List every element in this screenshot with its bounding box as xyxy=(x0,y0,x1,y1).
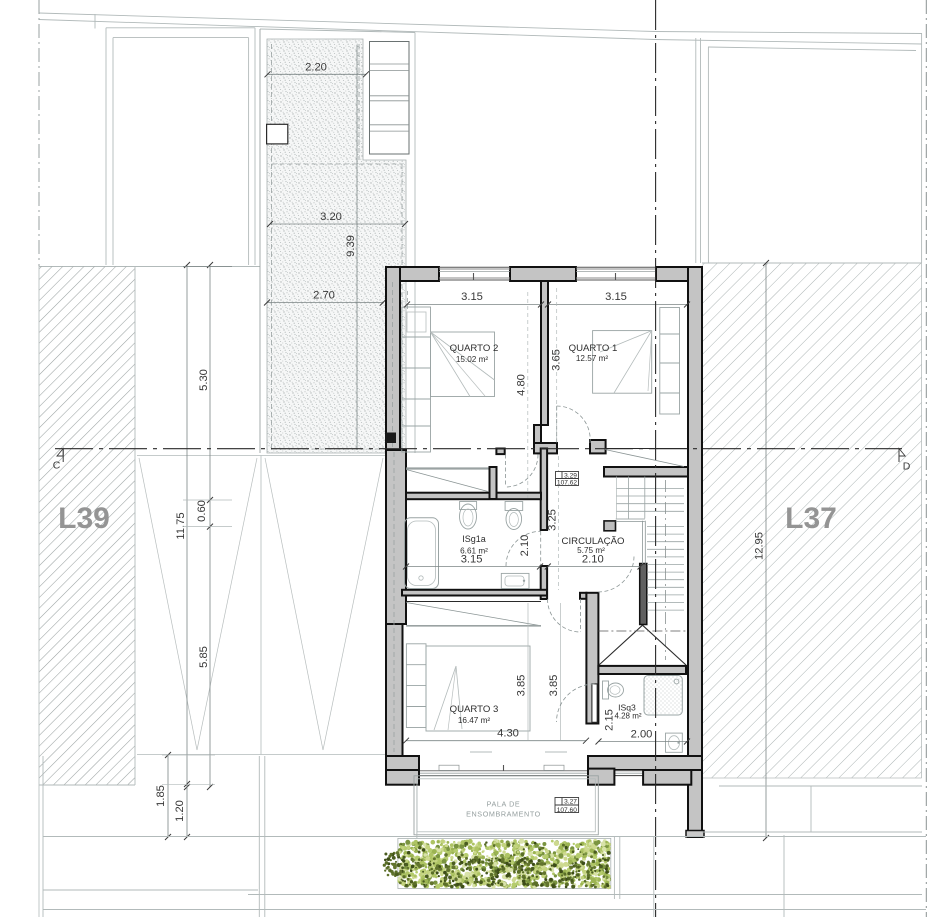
svg-text:3.25: 3.25 xyxy=(547,509,559,531)
svg-text:5.30: 5.30 xyxy=(198,369,210,391)
svg-text:2.15: 2.15 xyxy=(604,709,616,731)
svg-text:L37: L37 xyxy=(785,502,837,535)
svg-text:D: D xyxy=(903,461,911,473)
svg-text:3.15: 3.15 xyxy=(461,554,483,566)
svg-text:3.15: 3.15 xyxy=(461,291,483,303)
svg-text:2.20: 2.20 xyxy=(305,62,327,74)
svg-text:3.29: 3.29 xyxy=(564,472,577,479)
svg-text:107.60: 107.60 xyxy=(557,807,578,814)
svg-text:11.75: 11.75 xyxy=(175,512,187,539)
svg-text:3.65: 3.65 xyxy=(551,349,563,371)
svg-text:ISg1a: ISg1a xyxy=(462,534,486,544)
svg-text:3.85: 3.85 xyxy=(548,675,560,697)
svg-text:QUARTO 2: QUARTO 2 xyxy=(450,343,499,354)
svg-text:QUARTO 1: QUARTO 1 xyxy=(569,343,618,354)
svg-text:0.60: 0.60 xyxy=(196,500,208,522)
svg-text:4.80: 4.80 xyxy=(516,374,528,396)
svg-text:16.47 m²: 16.47 m² xyxy=(458,716,491,725)
svg-text:3.27: 3.27 xyxy=(564,799,577,806)
svg-text:2.00: 2.00 xyxy=(631,729,653,741)
svg-text:4.28 m²: 4.28 m² xyxy=(614,712,641,721)
svg-text:2.10: 2.10 xyxy=(582,554,604,566)
svg-text:PALA DE: PALA DE xyxy=(487,800,521,809)
svg-text:1.20: 1.20 xyxy=(174,800,186,822)
svg-text:2.70: 2.70 xyxy=(313,290,335,302)
svg-text:4.30: 4.30 xyxy=(497,728,519,740)
svg-text:107.62: 107.62 xyxy=(557,479,578,486)
svg-text:L39: L39 xyxy=(58,502,110,535)
svg-text:12.95: 12.95 xyxy=(754,532,766,560)
svg-text:1.85: 1.85 xyxy=(155,785,167,807)
svg-text:9.39: 9.39 xyxy=(345,235,357,257)
svg-text:3.85: 3.85 xyxy=(516,675,528,697)
svg-text:12.57 m²: 12.57 m² xyxy=(576,354,609,363)
svg-text:3.20: 3.20 xyxy=(320,211,342,223)
svg-text:2.10: 2.10 xyxy=(519,535,531,557)
svg-text:QUARTO 3: QUARTO 3 xyxy=(450,704,499,715)
svg-text:ENSOMBRAMENTO: ENSOMBRAMENTO xyxy=(466,810,541,819)
svg-text:15.02 m²: 15.02 m² xyxy=(456,355,489,364)
svg-text:3.15: 3.15 xyxy=(605,291,627,303)
svg-text:5.85: 5.85 xyxy=(198,646,210,668)
svg-text:C: C xyxy=(53,460,61,472)
